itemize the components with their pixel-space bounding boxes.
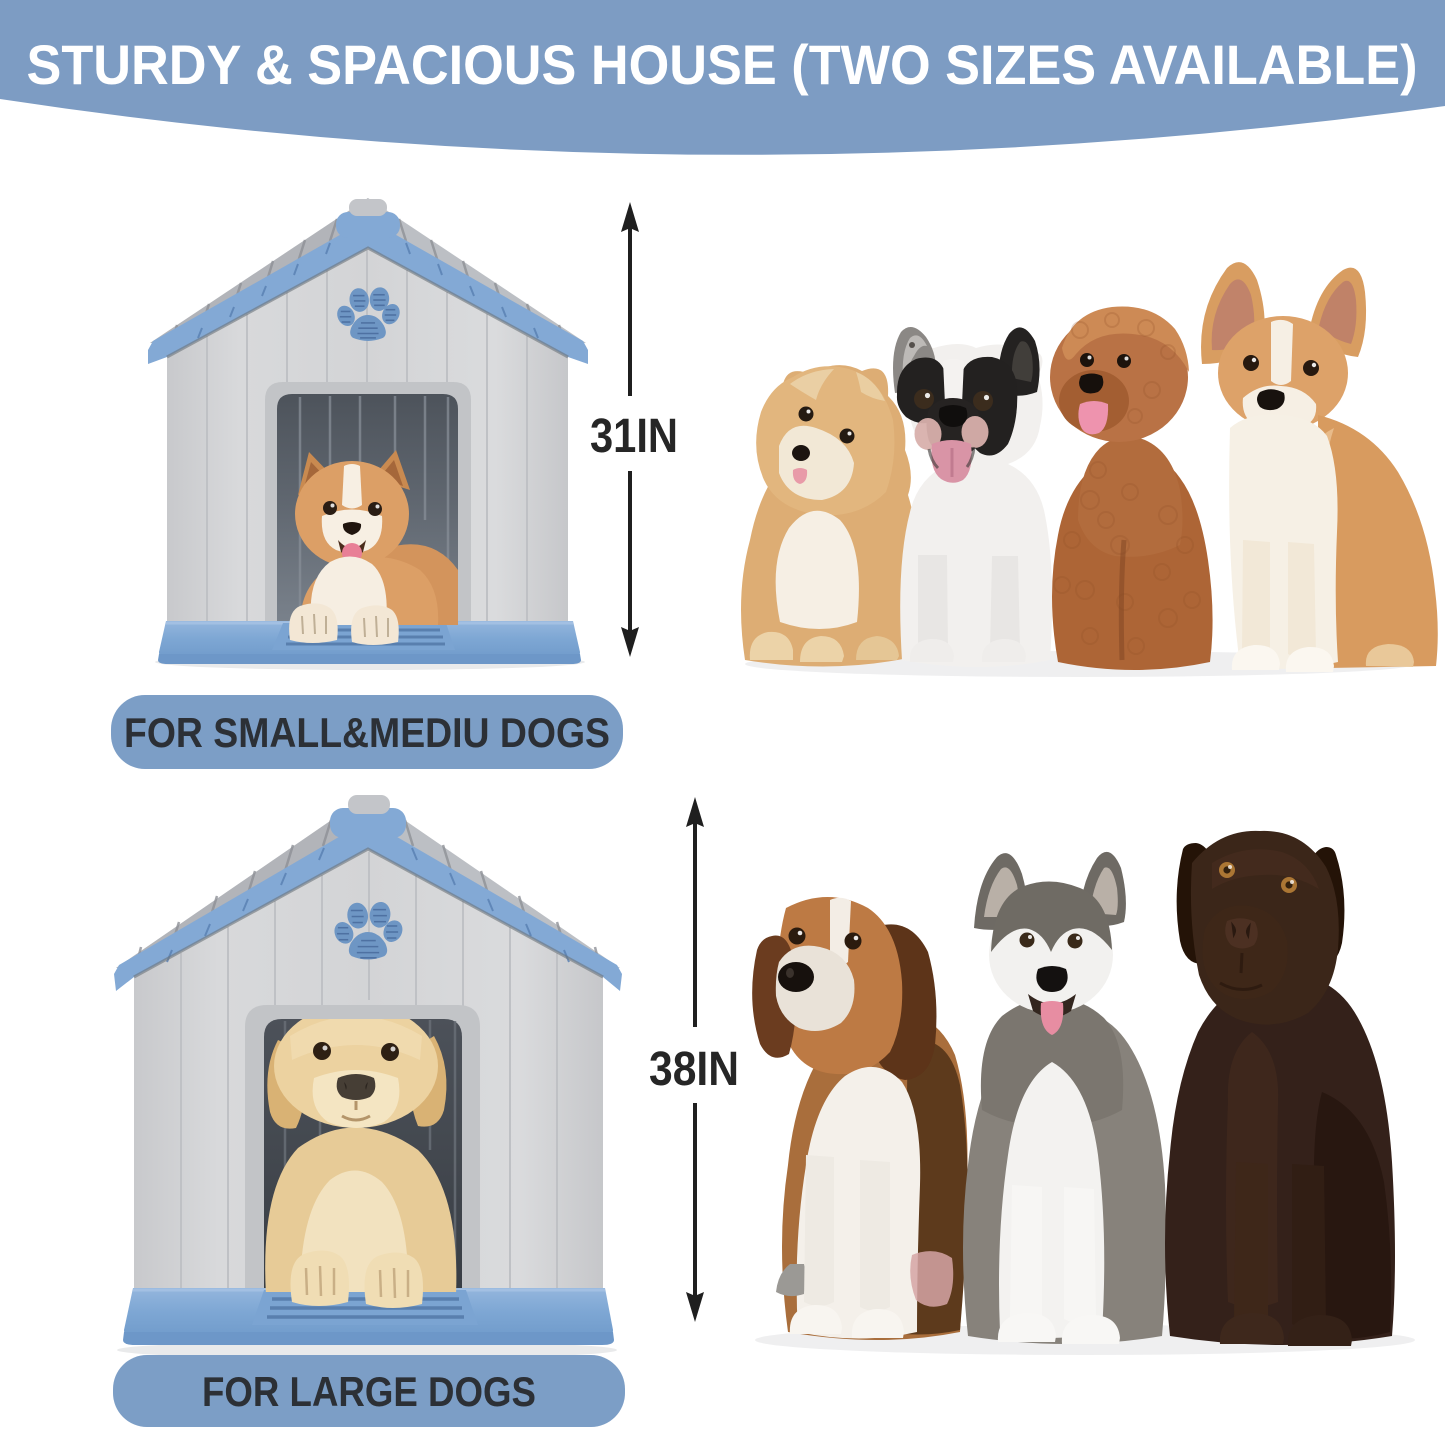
svg-text:STURDY & SPACIOUS HOUSE (TWO S: STURDY & SPACIOUS HOUSE (TWO SIZES AVAIL…: [27, 33, 1418, 96]
svg-text:FOR LARGE DOGS: FOR LARGE DOGS: [202, 1368, 536, 1415]
svg-text:38IN: 38IN: [649, 1043, 739, 1096]
svg-text:31IN: 31IN: [590, 410, 678, 463]
svg-text:FOR SMALL&MEDIU DOGS: FOR SMALL&MEDIU DOGS: [124, 709, 610, 756]
